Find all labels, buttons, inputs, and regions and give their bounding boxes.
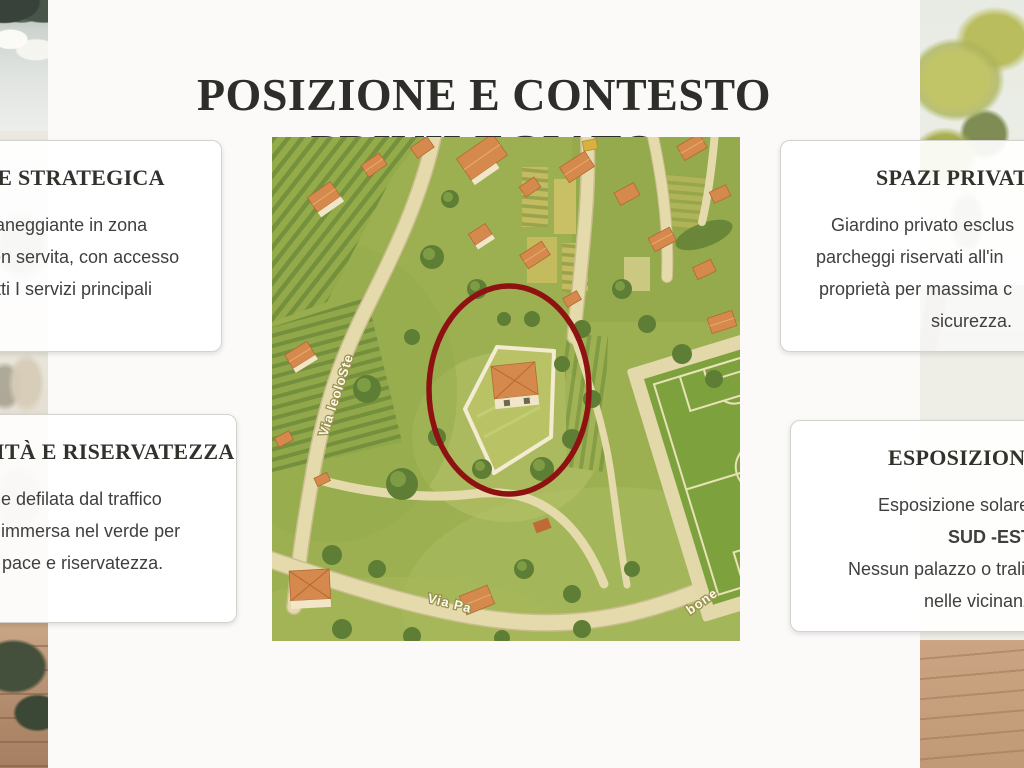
property-house bbox=[491, 362, 539, 409]
card-body: Esposizione solare SUD -EST Nessun palaz… bbox=[791, 489, 1024, 617]
card-line: re pace e riservatezza. bbox=[0, 547, 236, 579]
photo-plants-sky bbox=[0, 0, 48, 131]
map-artwork: Via leoloSte Via Pa bone bbox=[272, 137, 740, 641]
card-line: ben servita, con accesso bbox=[0, 241, 221, 273]
right-edge-photo-strip bbox=[920, 0, 1024, 768]
card-heading: SPAZI PRIVAT bbox=[876, 165, 1024, 191]
card-body: Giardino privato esclus parcheggi riserv… bbox=[781, 209, 1024, 337]
photo-terracotta-floor bbox=[920, 640, 1024, 768]
card-heading: ESPOSIZION bbox=[888, 445, 1024, 471]
photo-patio-plant bbox=[0, 623, 48, 768]
card-body: one defilata dal traffico a, immersa nel… bbox=[0, 483, 236, 579]
presentation-slide: POSIZIONE E CONTESTO PRIVILEGIATO NE STR… bbox=[0, 0, 1024, 768]
card-heading: LITÀ E RISERVATEZZA bbox=[0, 439, 236, 465]
hip-roof-house bbox=[289, 569, 331, 609]
card-line: Giardino privato esclus bbox=[831, 209, 1024, 241]
card-line: Nessun palazzo o trali bbox=[848, 553, 1024, 585]
card-line: a, immersa nel verde per bbox=[0, 515, 236, 547]
card-line: sicurezza. bbox=[931, 305, 1024, 337]
card-posizione-strategica: NE STRATEGICA pianeggiante in zona ben s… bbox=[0, 140, 222, 352]
card-spazi-privati: SPAZI PRIVAT Giardino privato esclus par… bbox=[780, 140, 1024, 352]
left-edge-photo-strip bbox=[0, 0, 48, 768]
card-line: Esposizione solare bbox=[878, 489, 1024, 521]
card-line: pianeggiante in zona bbox=[0, 209, 221, 241]
card-heading: NE STRATEGICA bbox=[0, 165, 221, 191]
card-line: SUD -EST bbox=[948, 521, 1024, 553]
card-line: parcheggi riservati all'in bbox=[816, 241, 1024, 273]
card-esposizione: ESPOSIZION Esposizione solare SUD -EST N… bbox=[790, 420, 1024, 632]
card-tranquillita-riservatezza: LITÀ E RISERVATEZZA one defilata dal tra… bbox=[0, 414, 237, 623]
card-line: nelle vicinanz bbox=[924, 585, 1024, 617]
photo-statue bbox=[0, 352, 48, 414]
card-line: proprietà per massima c bbox=[819, 273, 1024, 305]
card-line: one defilata dal traffico bbox=[0, 483, 236, 515]
card-body: pianeggiante in zona ben servita, con ac… bbox=[0, 209, 221, 305]
aerial-map-illustration: Via leoloSte Via Pa bone bbox=[272, 137, 740, 641]
card-line: tutti I servizi principali bbox=[0, 273, 221, 305]
